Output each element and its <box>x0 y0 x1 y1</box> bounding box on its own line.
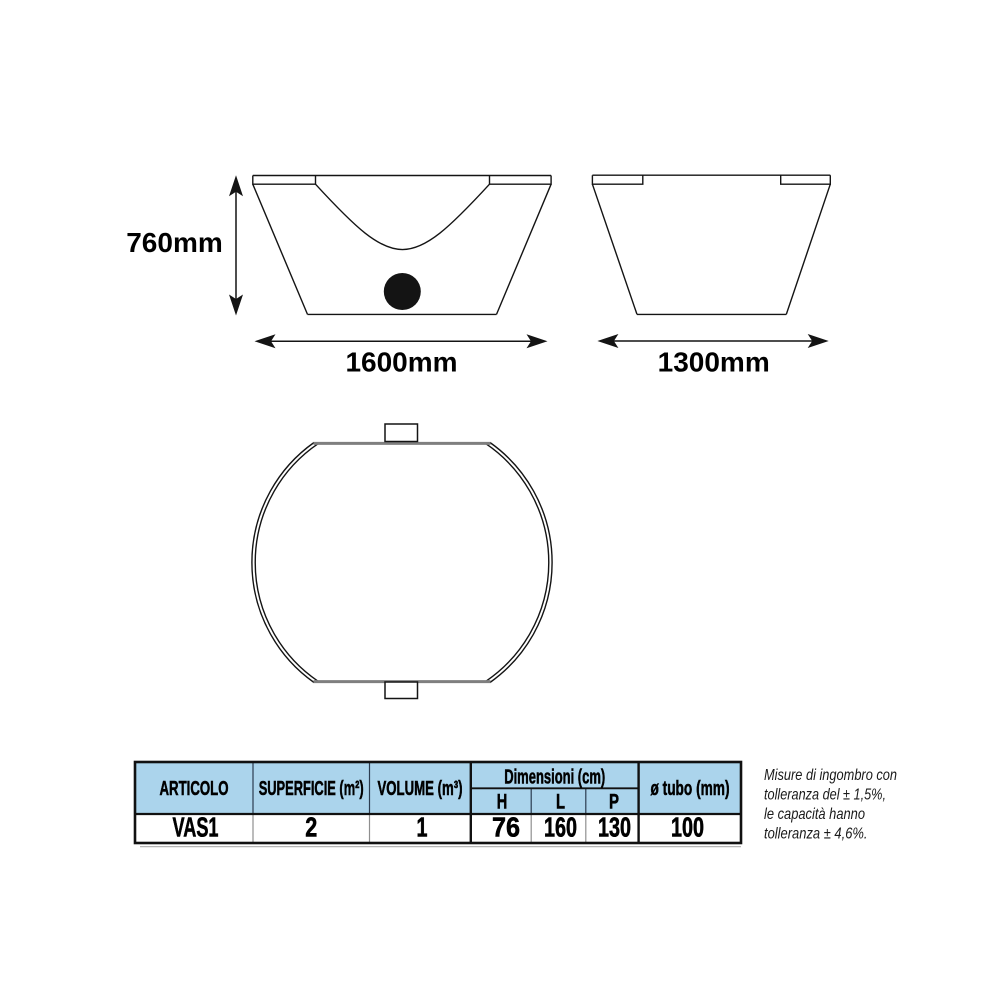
svg-text:2: 2 <box>305 812 317 843</box>
svg-text:P: P <box>609 791 619 814</box>
svg-text:L: L <box>556 791 565 814</box>
svg-text:1600mm: 1600mm <box>345 347 457 378</box>
svg-text:VOLUME (m³): VOLUME (m³) <box>378 778 463 800</box>
svg-text:tolleranza del ± 1,5%,: tolleranza del ± 1,5%, <box>764 787 886 804</box>
svg-text:VAS1: VAS1 <box>173 812 219 843</box>
svg-text:SUPERFICIE (m²): SUPERFICIE (m²) <box>259 778 364 800</box>
svg-text:130: 130 <box>598 812 631 843</box>
svg-text:ø tubo (mm): ø tubo (mm) <box>651 778 730 800</box>
svg-text:ARTICOLO: ARTICOLO <box>160 778 229 800</box>
svg-text:Dimensioni (cm): Dimensioni (cm) <box>504 767 605 789</box>
svg-text:1300mm: 1300mm <box>658 347 770 378</box>
svg-text:H: H <box>497 791 508 814</box>
svg-text:le capacità hanno: le capacità hanno <box>764 806 865 823</box>
svg-text:1: 1 <box>417 812 428 843</box>
svg-text:tolleranza ± 4,6%.: tolleranza ± 4,6%. <box>764 826 868 843</box>
svg-text:Misure di ingombro con: Misure di ingombro con <box>764 767 897 784</box>
svg-text:160: 160 <box>544 812 577 843</box>
svg-text:76: 76 <box>492 812 520 843</box>
svg-text:100: 100 <box>671 812 704 843</box>
svg-text:760mm: 760mm <box>126 227 223 258</box>
